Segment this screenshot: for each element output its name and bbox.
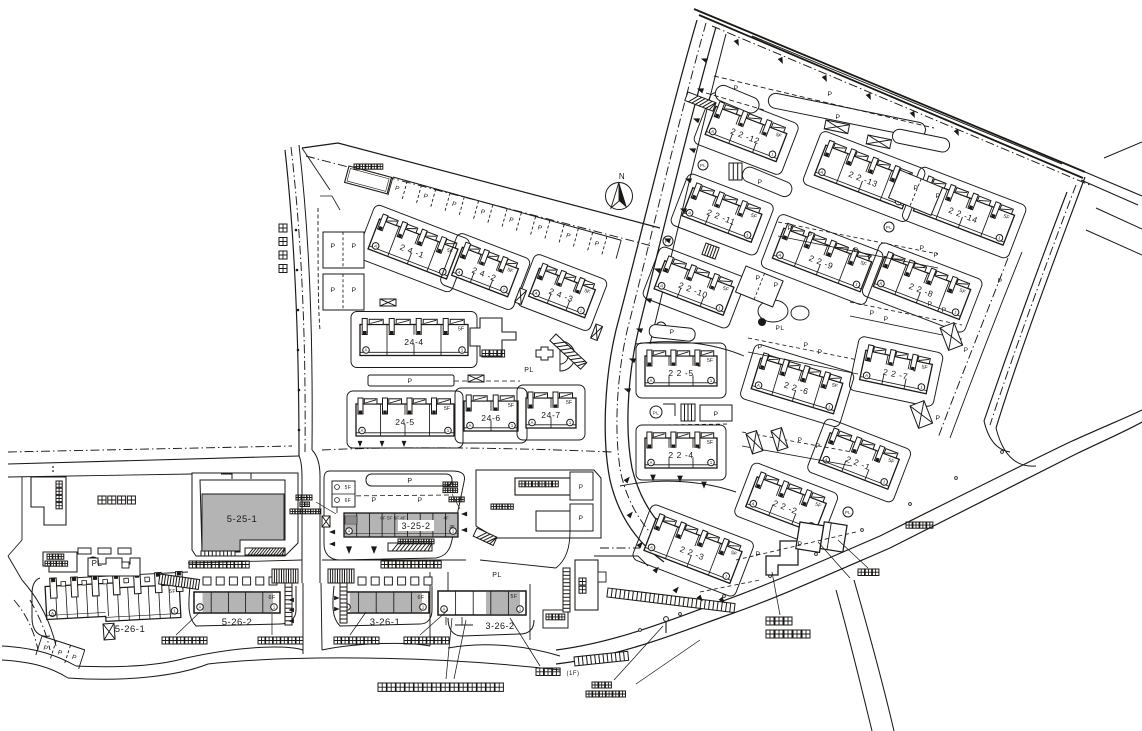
svg-text:P: P bbox=[835, 114, 840, 121]
svg-text:P: P bbox=[579, 484, 584, 491]
svg-text:5F: 5F bbox=[458, 327, 464, 333]
svg-text:2 2 -5: 2 2 -5 bbox=[668, 368, 693, 378]
svg-text:P: P bbox=[797, 541, 802, 548]
svg-text:PL: PL bbox=[653, 411, 660, 416]
svg-text:24-4: 24-4 bbox=[404, 337, 423, 347]
svg-text:P: P bbox=[869, 310, 874, 317]
svg-text:P: P bbox=[579, 515, 584, 522]
svg-text:5F: 5F bbox=[508, 403, 514, 409]
svg-text:P: P bbox=[330, 287, 335, 294]
svg-text:5-26-1: 5-26-1 bbox=[115, 624, 145, 635]
svg-text:P: P bbox=[933, 252, 938, 259]
svg-text:P: P bbox=[797, 437, 802, 444]
svg-text:P: P bbox=[913, 185, 918, 192]
svg-text:P: P bbox=[773, 282, 778, 289]
svg-text:5F: 5F bbox=[707, 440, 713, 446]
svg-text:6F 5F 5F 4F: 6F 5F 5F 4F bbox=[380, 516, 405, 521]
svg-text:5-26-2: 5-26-2 bbox=[222, 617, 252, 628]
svg-text:P: P bbox=[935, 193, 940, 200]
svg-text:P: P bbox=[755, 275, 760, 282]
svg-text:2 2 -4: 2 2 -4 bbox=[668, 450, 693, 460]
svg-text:24-7: 24-7 bbox=[541, 410, 560, 420]
svg-text:P: P bbox=[787, 225, 792, 232]
svg-text:(1F): (1F) bbox=[567, 671, 580, 677]
svg-text:P: P bbox=[935, 415, 940, 422]
svg-text:6F: 6F bbox=[268, 595, 275, 601]
svg-text:A: A bbox=[650, 378, 653, 383]
svg-text:A: A bbox=[361, 428, 364, 433]
svg-text:5F: 5F bbox=[707, 358, 713, 364]
svg-text:A: A bbox=[443, 607, 446, 612]
svg-text:24-6: 24-6 bbox=[481, 413, 500, 423]
svg-text:P: P bbox=[407, 378, 412, 385]
svg-text:5F: 5F bbox=[444, 406, 450, 412]
svg-text:3-26-1: 3-26-1 bbox=[370, 617, 400, 628]
svg-text:P: P bbox=[883, 316, 888, 323]
svg-text:A: A bbox=[531, 420, 534, 425]
svg-text:P: P bbox=[733, 85, 738, 92]
svg-text:P: P bbox=[351, 243, 356, 250]
svg-text:P: P bbox=[755, 551, 760, 558]
svg-text:4F: 4F bbox=[443, 516, 449, 521]
svg-text:P: P bbox=[867, 254, 872, 261]
svg-text:3-25-2: 3-25-2 bbox=[401, 521, 430, 531]
svg-text:P: P bbox=[817, 349, 822, 356]
svg-text:P: P bbox=[713, 411, 718, 418]
svg-text:P: P bbox=[853, 247, 858, 254]
svg-text:P: P bbox=[407, 478, 412, 485]
svg-text:PL: PL bbox=[524, 367, 534, 374]
svg-text:A: A bbox=[469, 423, 472, 428]
svg-text:P: P bbox=[351, 287, 356, 294]
svg-text:PL: PL bbox=[92, 559, 103, 568]
svg-text:P: P bbox=[941, 307, 946, 314]
svg-text:P: P bbox=[919, 245, 924, 252]
svg-text:P: P bbox=[927, 301, 932, 308]
svg-text:P: P bbox=[417, 497, 422, 504]
svg-text:PL: PL bbox=[776, 325, 785, 332]
svg-text:N: N bbox=[619, 172, 625, 181]
svg-text:PL: PL bbox=[845, 510, 851, 515]
svg-text:P: P bbox=[330, 243, 335, 250]
svg-text:P: P bbox=[827, 91, 832, 98]
svg-text:5F: 5F bbox=[345, 485, 352, 491]
svg-text:3-26-2: 3-26-2 bbox=[485, 621, 514, 631]
svg-text:P: P bbox=[803, 342, 808, 349]
svg-text:P: P bbox=[807, 232, 812, 239]
svg-text:5F: 5F bbox=[169, 589, 176, 595]
svg-text:5F: 5F bbox=[510, 594, 517, 600]
svg-text:5F: 5F bbox=[566, 400, 572, 406]
svg-text:PL: PL bbox=[700, 163, 706, 168]
svg-text:P: P bbox=[997, 278, 1002, 285]
svg-text:A: A bbox=[199, 605, 202, 610]
svg-text:A: A bbox=[365, 348, 368, 353]
svg-text:P: P bbox=[963, 347, 968, 354]
svg-text:24-5: 24-5 bbox=[395, 417, 414, 427]
svg-text:A: A bbox=[650, 460, 653, 465]
svg-text:P: P bbox=[757, 179, 762, 186]
svg-text:P: P bbox=[669, 329, 674, 336]
svg-text:P: P bbox=[815, 443, 820, 450]
svg-text:5-25-1: 5-25-1 bbox=[227, 514, 257, 525]
svg-text:6F: 6F bbox=[345, 498, 352, 504]
svg-text:5F: 5F bbox=[921, 364, 928, 371]
svg-text:A: A bbox=[348, 529, 351, 534]
svg-text:6F: 6F bbox=[417, 595, 424, 601]
svg-text:P: P bbox=[757, 344, 762, 351]
svg-text:PL: PL bbox=[492, 572, 502, 579]
svg-text:P: P bbox=[371, 497, 376, 504]
svg-text:PL: PL bbox=[886, 225, 892, 230]
